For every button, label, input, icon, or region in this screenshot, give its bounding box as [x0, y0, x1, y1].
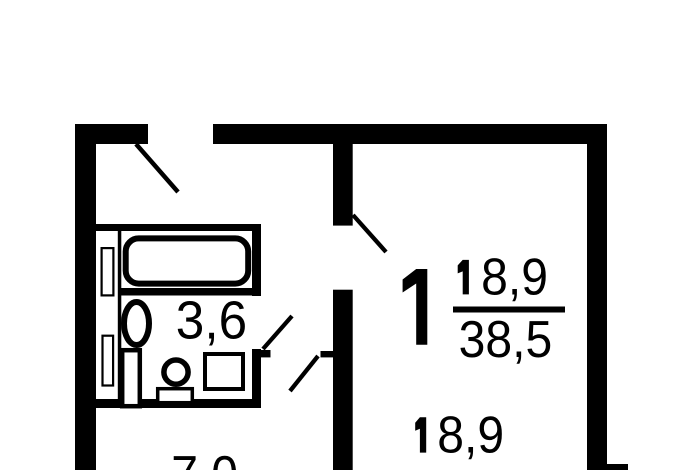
svg-text:7,0: 7,0	[171, 445, 238, 470]
svg-text:8,9: 8,9	[481, 248, 548, 306]
svg-text:8,9: 8,9	[437, 406, 504, 464]
svg-text:38,5: 38,5	[459, 310, 553, 368]
svg-text:3,6: 3,6	[176, 290, 247, 350]
